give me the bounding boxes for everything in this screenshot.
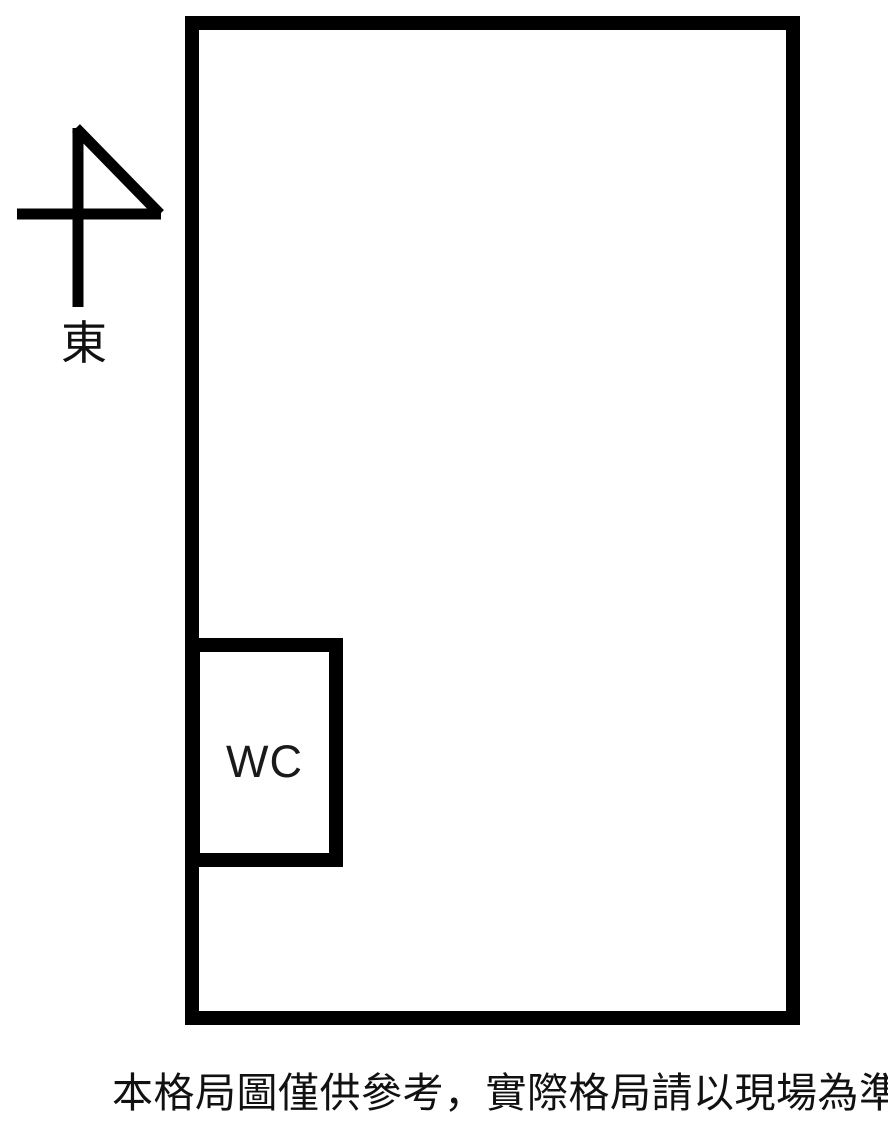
floor-plan-canvas: 東 WC 本格局圖僅供參考，實際格局請以現場為準 xyxy=(0,0,888,1128)
wc-room-outline: WC xyxy=(186,638,343,867)
compass: 東 xyxy=(8,118,178,378)
wc-room-label: WC xyxy=(226,718,303,788)
disclaimer-caption: 本格局圖僅供參考，實際格局請以現場為準 xyxy=(112,1068,872,1118)
main-room-outline xyxy=(185,16,800,1025)
east-arrow-icon xyxy=(8,118,178,318)
compass-direction-label: 東 xyxy=(54,314,114,372)
